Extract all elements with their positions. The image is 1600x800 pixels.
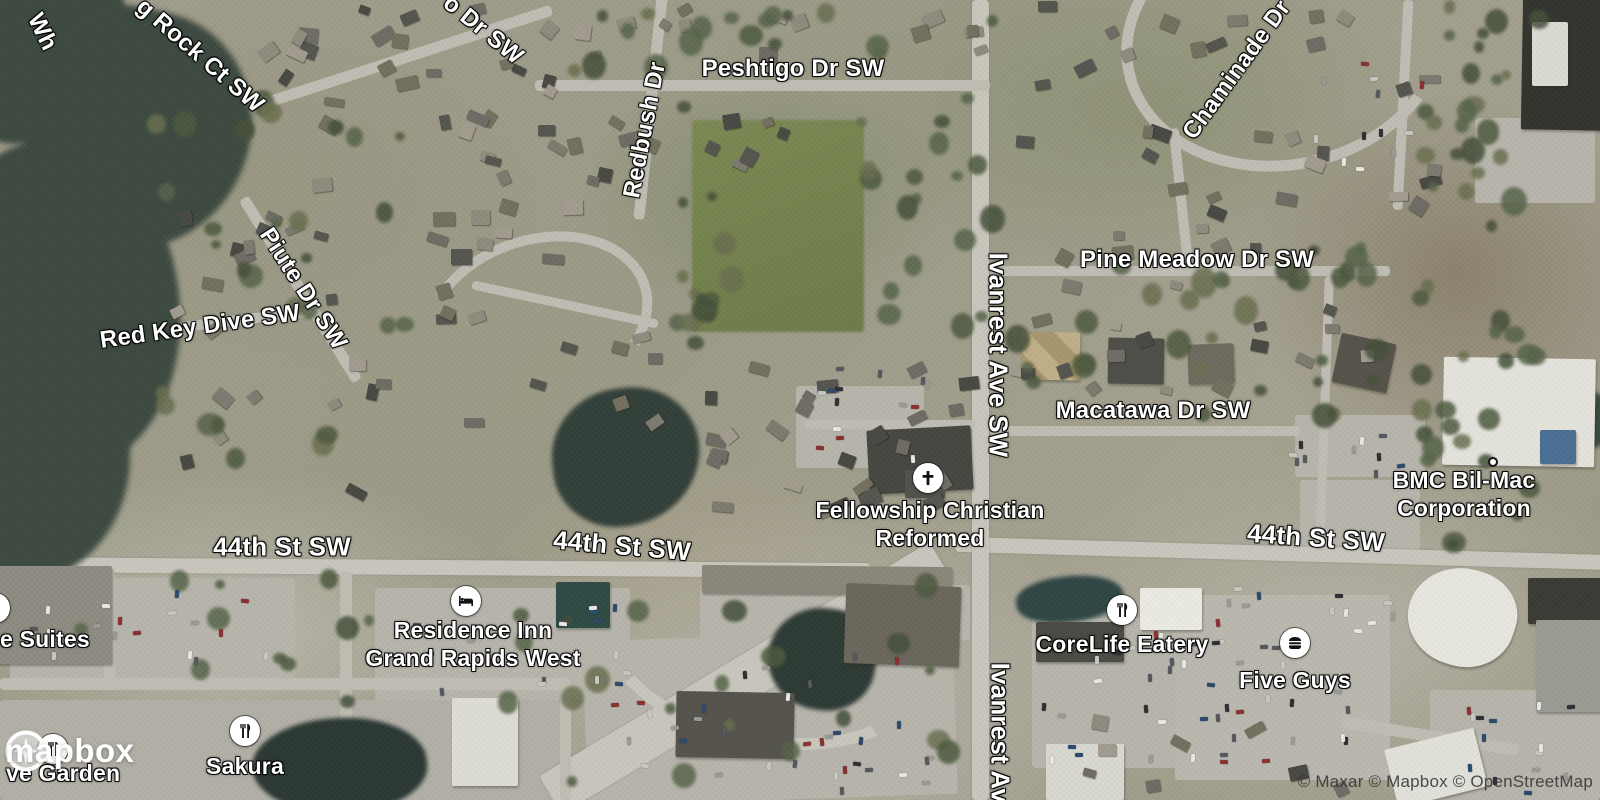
tree-canopy: [929, 132, 949, 155]
building: [958, 376, 979, 391]
car: [833, 427, 841, 431]
building: [376, 59, 396, 78]
tree-canopy: [1312, 403, 1337, 428]
car: [30, 627, 38, 631]
building: [1145, 779, 1161, 793]
building: [376, 379, 391, 389]
car: [1321, 77, 1326, 85]
car: [1191, 754, 1195, 762]
car: [835, 398, 840, 406]
car: [1488, 719, 1496, 723]
car: [1303, 455, 1307, 463]
car: [614, 651, 618, 659]
car: [1159, 633, 1163, 641]
building: [180, 454, 195, 470]
tree-canopy: [887, 633, 910, 653]
building: [1322, 303, 1337, 317]
car: [922, 781, 930, 785]
car: [839, 787, 843, 795]
car: [1168, 666, 1172, 674]
car: [1392, 149, 1396, 157]
tree-canopy: [513, 608, 529, 623]
car: [92, 623, 100, 627]
building: [542, 253, 564, 265]
car: [1280, 661, 1285, 669]
car: [263, 652, 268, 660]
car: [825, 735, 833, 739]
tree-canopy: [1489, 325, 1502, 340]
tree-canopy: [1021, 362, 1034, 373]
tree-canopy: [320, 569, 338, 590]
car: [1342, 158, 1347, 166]
tree-canopy: [883, 282, 899, 300]
car: [853, 762, 861, 767]
building: [1284, 130, 1301, 147]
car: [1362, 132, 1366, 140]
car: [819, 738, 824, 746]
building: [426, 69, 441, 77]
building: [439, 114, 452, 131]
tree-canopy: [300, 298, 318, 319]
tree-canopy: [1206, 332, 1218, 343]
tree-canopy: [934, 115, 951, 128]
car: [808, 680, 813, 688]
building: [648, 353, 662, 364]
tree-canopy: [1444, 30, 1455, 40]
car: [865, 768, 873, 772]
tree-canopy: [665, 703, 676, 714]
car: [1288, 453, 1296, 458]
tree-canopy: [395, 317, 414, 332]
car: [1314, 135, 1318, 143]
car: [1068, 745, 1076, 749]
tree-canopy: [158, 183, 175, 201]
car: [924, 757, 929, 765]
car: [133, 631, 141, 636]
tree-canopy: [758, 13, 775, 28]
building: [484, 155, 502, 167]
building: [907, 410, 928, 427]
tree-canopy: [215, 580, 225, 589]
building: [597, 166, 613, 182]
car: [743, 671, 748, 679]
tree-canopy: [1485, 9, 1508, 34]
building: [433, 212, 455, 226]
car: [595, 676, 599, 684]
car: [47, 629, 55, 633]
car: [1384, 601, 1392, 605]
car: [911, 405, 919, 409]
building: [471, 210, 490, 225]
car: [1058, 714, 1066, 719]
building: [327, 398, 342, 411]
building: [1119, 46, 1136, 63]
tree-canopy: [380, 317, 396, 333]
car: [191, 620, 199, 625]
car: [1231, 734, 1235, 742]
tree-canopy: [678, 197, 688, 208]
tree-canopy: [951, 171, 964, 182]
car: [792, 760, 797, 768]
tree-canopy: [904, 255, 922, 276]
car: [1257, 592, 1262, 600]
car: [1212, 640, 1220, 645]
building: [1073, 58, 1097, 79]
car: [118, 617, 122, 625]
building: [399, 9, 419, 27]
tree-canopy: [260, 102, 282, 123]
building: [1408, 195, 1430, 217]
car: [1216, 714, 1221, 722]
tree-canopy: [1441, 418, 1460, 436]
building: [973, 44, 988, 56]
tree-canopy: [1529, 10, 1549, 30]
mapbox-wordmark: mapbox: [5, 732, 135, 770]
tree-canopy: [1075, 310, 1098, 335]
car: [1148, 674, 1152, 682]
car: [1262, 759, 1270, 764]
car: [219, 629, 223, 637]
car: [1182, 660, 1187, 668]
building: [1159, 14, 1180, 34]
car: [175, 590, 180, 598]
tree-canopy: [147, 114, 166, 133]
car: [786, 693, 791, 701]
car: [1471, 713, 1475, 721]
building: [1336, 9, 1355, 27]
car: [623, 670, 631, 675]
tree-canopy: [395, 132, 405, 142]
car: [102, 604, 110, 608]
building: [1244, 721, 1266, 739]
tree-canopy: [768, 38, 782, 50]
car: [897, 721, 901, 729]
building: [243, 239, 255, 254]
car: [1334, 690, 1342, 695]
car: [899, 402, 907, 407]
car: [488, 657, 493, 665]
tree-canopy: [719, 266, 744, 293]
car: [1226, 599, 1230, 607]
building: [499, 198, 519, 217]
car: [1192, 641, 1200, 646]
car: [1330, 607, 1334, 615]
building: [346, 483, 369, 502]
building: [748, 361, 770, 377]
tree-canopy: [954, 229, 976, 250]
car: [843, 766, 847, 774]
car: [52, 652, 56, 660]
car: [858, 737, 863, 745]
tree-canopy: [1192, 362, 1210, 377]
building: [783, 479, 803, 492]
car: [1236, 661, 1244, 666]
tree-canopy: [1411, 364, 1432, 384]
car: [1419, 81, 1424, 89]
tree-canopy: [906, 169, 923, 185]
car: [592, 619, 600, 623]
building: [391, 33, 409, 49]
tree-canopy: [1517, 344, 1541, 365]
building: [211, 387, 234, 410]
building: [658, 18, 672, 31]
tree-canopy: [1308, 245, 1320, 256]
tree-canopy: [856, 117, 866, 127]
car: [762, 666, 770, 670]
building: [1098, 744, 1116, 756]
tree-canopy: [1458, 183, 1474, 200]
tree-canopy: [915, 573, 938, 598]
tree-canopy: [1447, 539, 1459, 549]
tree-canopy: [234, 119, 255, 141]
tree-canopy: [156, 386, 168, 400]
building: [607, 115, 625, 131]
building: [562, 199, 584, 215]
tree-canopy: [1444, 0, 1455, 13]
car: [1352, 446, 1356, 454]
car: [1567, 705, 1575, 710]
tree-canopy: [975, 311, 988, 322]
tree-canopy: [1422, 436, 1443, 460]
building: [1159, 385, 1173, 396]
building: [1107, 349, 1126, 362]
car: [1215, 618, 1220, 626]
tree-canopy: [817, 3, 835, 23]
tree-canopy: [1412, 290, 1428, 305]
car: [1200, 717, 1208, 721]
car: [641, 763, 649, 768]
building: [1104, 25, 1119, 40]
building: [246, 389, 262, 405]
building: [1056, 362, 1074, 380]
satellite-map-canvas[interactable]: Wh g Rock Ct SW o Dr SW Peshtigo Dr SW R…: [0, 0, 1600, 800]
car: [1041, 703, 1046, 711]
car: [1225, 704, 1230, 712]
building: [1196, 224, 1209, 234]
tree-canopy: [677, 101, 691, 112]
building: [765, 419, 789, 441]
building: [1250, 339, 1269, 354]
car: [193, 657, 198, 665]
tree-canopy: [561, 686, 584, 710]
building: [1205, 36, 1227, 53]
car: [836, 366, 844, 371]
car: [1539, 744, 1543, 752]
car: [1220, 760, 1228, 764]
car: [45, 605, 50, 613]
car: [648, 710, 653, 718]
building: [1061, 279, 1082, 296]
tree-canopy: [301, 253, 313, 263]
tree-canopy: [1501, 187, 1527, 216]
suburban-texture-layer: [0, 0, 1600, 800]
building: [1305, 36, 1325, 53]
car: [1295, 458, 1299, 466]
car: [878, 370, 883, 378]
tree-canopy: [951, 313, 974, 339]
car: [1149, 755, 1154, 763]
building: [1038, 1, 1058, 12]
car: [1266, 695, 1271, 703]
building: [538, 125, 555, 136]
tree-canopy: [1426, 115, 1443, 129]
tree-canopy: [761, 646, 786, 667]
tree-canopy: [1416, 147, 1435, 163]
tree-canopy: [722, 600, 747, 623]
tree-canopy: [1112, 257, 1132, 275]
car: [466, 656, 474, 661]
building: [777, 126, 791, 140]
building: [1325, 324, 1339, 334]
tree-canopy: [1142, 283, 1161, 306]
car: [627, 737, 631, 745]
building: [458, 121, 477, 140]
tree-canopy: [707, 192, 717, 201]
building: [574, 23, 592, 41]
car: [899, 772, 907, 776]
building: [922, 492, 946, 513]
tree-canopy: [1213, 271, 1229, 288]
building: [1253, 321, 1267, 332]
tree-canopy: [328, 120, 344, 135]
tree-canopy: [1471, 167, 1485, 180]
building: [937, 474, 953, 491]
car: [1242, 603, 1250, 607]
building: [178, 210, 193, 227]
building: [1250, 243, 1261, 253]
tree-canopy: [1356, 242, 1367, 253]
car: [40, 641, 45, 649]
tree-canopy: [937, 740, 961, 764]
tree-canopy: [498, 691, 518, 715]
tree-canopy: [1511, 507, 1524, 521]
car: [1368, 620, 1376, 625]
building: [1395, 81, 1412, 98]
building: [1169, 734, 1190, 752]
car: [802, 742, 810, 747]
car: [1335, 594, 1343, 598]
tree-canopy: [1478, 408, 1500, 430]
car: [241, 598, 249, 603]
building: [559, 341, 577, 356]
car: [853, 653, 857, 661]
building: [1084, 381, 1101, 398]
car: [559, 622, 567, 627]
building: [451, 249, 472, 265]
tree-canopy: [627, 600, 649, 623]
tree-canopy: [1486, 220, 1497, 232]
tree-canopy: [346, 127, 364, 147]
tree-canopy: [271, 219, 282, 228]
building: [722, 113, 741, 130]
car: [1158, 720, 1166, 724]
car: [816, 446, 824, 451]
building: [704, 140, 721, 156]
tree-canopy: [567, 776, 578, 786]
car: [828, 389, 836, 393]
car: [1113, 645, 1121, 650]
car: [1220, 753, 1228, 757]
car: [1169, 657, 1174, 665]
car: [1467, 707, 1472, 715]
car: [1354, 629, 1362, 633]
tree-canopy: [1005, 325, 1029, 353]
tree-canopy: [1493, 149, 1508, 164]
car: [1377, 453, 1382, 461]
car: [611, 702, 619, 706]
building: [469, 3, 486, 17]
building: [426, 231, 449, 247]
building: [311, 176, 333, 193]
car: [1094, 678, 1102, 683]
tree-canopy: [1196, 406, 1211, 422]
car: [678, 739, 686, 744]
building: [837, 452, 857, 470]
car: [615, 681, 623, 686]
tree-canopy: [961, 93, 974, 104]
car: [836, 436, 844, 440]
car: [167, 611, 175, 616]
car: [1476, 716, 1484, 720]
car: [1356, 167, 1364, 171]
tree-canopy: [836, 710, 851, 727]
car: [694, 717, 702, 722]
tree-canopy: [1461, 137, 1485, 164]
tree-canopy: [987, 15, 998, 28]
building: [539, 19, 560, 40]
building: [1275, 191, 1298, 207]
tree-canopy: [1234, 296, 1258, 325]
car: [1299, 440, 1303, 448]
tree-canopy: [515, 632, 533, 652]
car: [1075, 753, 1083, 757]
car: [413, 622, 421, 626]
building: [866, 425, 889, 447]
building: [896, 439, 911, 455]
car: [911, 455, 916, 463]
tree-canopy: [1316, 355, 1328, 366]
tree-canopy: [336, 616, 359, 639]
building: [1308, 9, 1324, 24]
tree-canopy: [1412, 399, 1431, 422]
tree-canopy: [692, 298, 718, 322]
car: [113, 632, 118, 640]
tree-canopy: [170, 570, 189, 592]
building: [761, 116, 774, 128]
tree-canopy: [376, 202, 393, 222]
car: [1346, 706, 1350, 714]
car: [671, 725, 679, 730]
car: [467, 639, 475, 643]
building: [202, 322, 222, 341]
tree-canopy: [621, 23, 635, 39]
building: [967, 25, 978, 36]
map-attribution[interactable]: © Maxar © Mapbox © OpenStreetMap: [1298, 772, 1593, 792]
tree-canopy: [1365, 339, 1388, 361]
tree-canopy: [1367, 375, 1380, 385]
car: [895, 657, 900, 665]
car: [637, 701, 645, 705]
tree-canopy: [204, 222, 222, 236]
building: [511, 63, 527, 76]
tree-canopy: [582, 52, 605, 80]
building: [1427, 163, 1443, 176]
tree-canopy: [877, 304, 901, 325]
building: [1226, 15, 1246, 27]
car: [1234, 587, 1242, 591]
tree-canopy: [1519, 479, 1539, 498]
building: [1207, 203, 1228, 221]
